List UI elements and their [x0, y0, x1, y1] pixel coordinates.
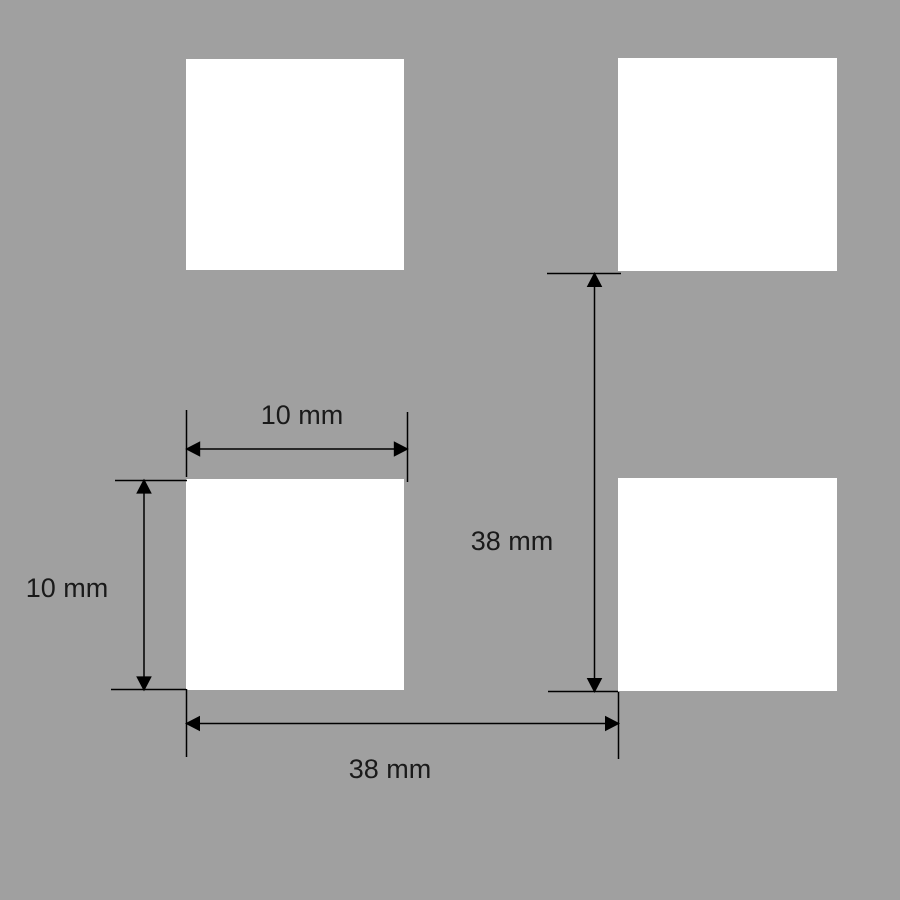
svg-text:10 mm: 10 mm [261, 400, 344, 430]
svg-text:38 mm: 38 mm [471, 526, 554, 556]
svg-text:10 mm: 10 mm [26, 573, 109, 603]
svg-text:38 mm: 38 mm [349, 754, 432, 784]
